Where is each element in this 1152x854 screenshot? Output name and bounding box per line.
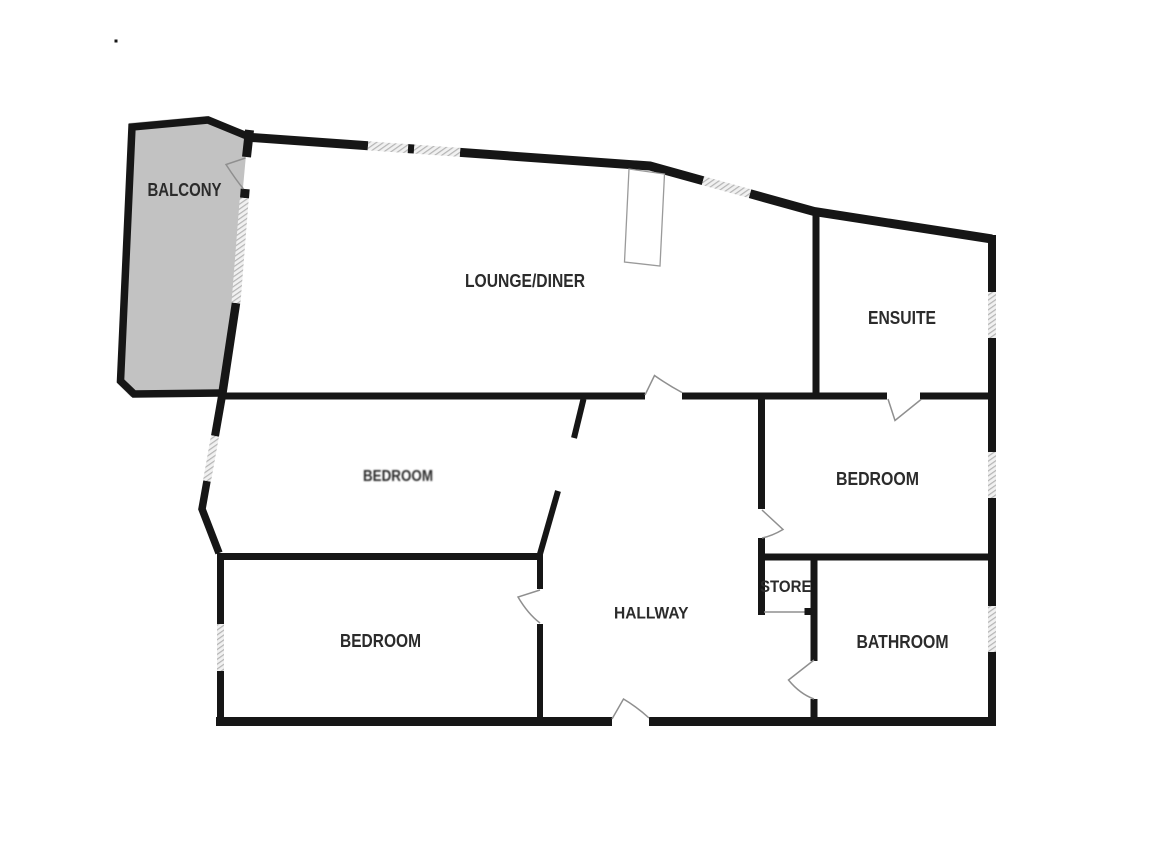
svg-text:BATHROOM: BATHROOM: [857, 631, 949, 652]
svg-text:BEDROOM: BEDROOM: [363, 468, 433, 485]
svg-text:ENSUITE: ENSUITE: [868, 308, 936, 328]
svg-text:BALCONY: BALCONY: [148, 180, 222, 200]
svg-text:LOUNGE/DINER: LOUNGE/DINER: [465, 271, 585, 291]
svg-text:BEDROOM: BEDROOM: [340, 630, 421, 651]
svg-text:STORE: STORE: [760, 578, 812, 596]
svg-text:HALLWAY: HALLWAY: [614, 605, 689, 623]
svg-text:BEDROOM: BEDROOM: [836, 469, 919, 489]
